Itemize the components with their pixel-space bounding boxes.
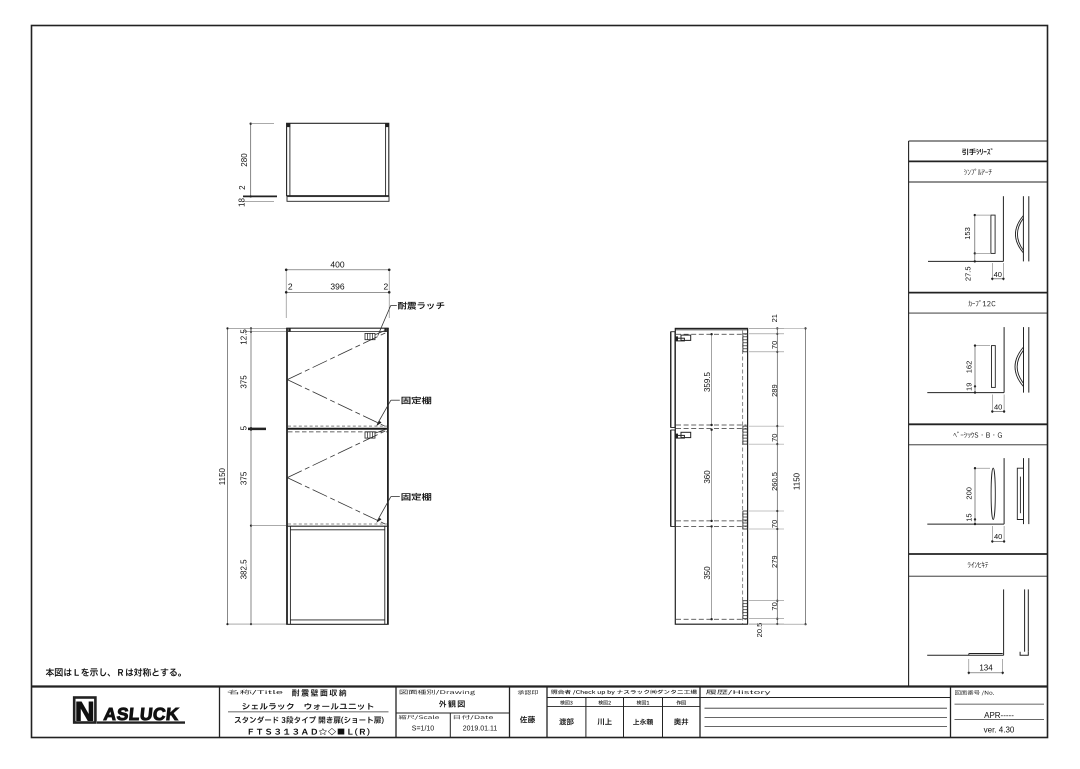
- svg-text:375: 375: [240, 471, 249, 485]
- svg-text:ASLUCK: ASLUCK: [103, 704, 180, 724]
- svg-text:280: 280: [240, 153, 249, 167]
- svg-text:289: 289: [770, 384, 779, 397]
- svg-text:ver. 4.30: ver. 4.30: [984, 726, 1015, 735]
- svg-text:12.5: 12.5: [240, 329, 249, 345]
- svg-text:400: 400: [330, 259, 344, 269]
- svg-text:375: 375: [240, 375, 249, 389]
- svg-text:APR-----: APR-----: [984, 711, 1014, 720]
- svg-text:134: 134: [979, 663, 993, 672]
- svg-text:70: 70: [770, 520, 779, 528]
- svg-text:396: 396: [330, 282, 344, 292]
- svg-text:359.5: 359.5: [703, 371, 712, 392]
- svg-text:40: 40: [994, 402, 1002, 411]
- svg-text:5: 5: [240, 425, 249, 430]
- svg-text:40: 40: [994, 270, 1002, 279]
- svg-text:40: 40: [994, 532, 1002, 541]
- svg-text:2: 2: [288, 282, 293, 292]
- svg-text:382.5: 382.5: [240, 559, 249, 580]
- svg-text:70: 70: [770, 602, 779, 610]
- svg-text:20.5: 20.5: [755, 623, 764, 638]
- svg-text:18: 18: [238, 198, 247, 207]
- svg-text:360: 360: [703, 470, 712, 484]
- svg-text:S=1/10: S=1/10: [412, 726, 434, 733]
- svg-text:19: 19: [965, 383, 974, 391]
- svg-text:162: 162: [965, 361, 974, 374]
- svg-text:2019.01.11: 2019.01.11: [463, 726, 498, 733]
- svg-text:27.5: 27.5: [963, 266, 972, 281]
- svg-text:153: 153: [963, 227, 972, 240]
- svg-text:260.5: 260.5: [770, 472, 779, 491]
- svg-text:2: 2: [384, 282, 389, 292]
- svg-text:15: 15: [965, 513, 974, 521]
- svg-text:1150: 1150: [218, 467, 227, 485]
- svg-text:200: 200: [965, 487, 974, 500]
- svg-text:1150: 1150: [793, 472, 802, 490]
- svg-text:N: N: [75, 697, 95, 727]
- svg-text:350: 350: [703, 566, 712, 580]
- svg-text:2: 2: [238, 185, 247, 190]
- svg-text:70: 70: [770, 341, 779, 349]
- svg-text:279: 279: [770, 555, 779, 568]
- svg-text:21: 21: [770, 314, 779, 322]
- svg-text:70: 70: [770, 434, 779, 442]
